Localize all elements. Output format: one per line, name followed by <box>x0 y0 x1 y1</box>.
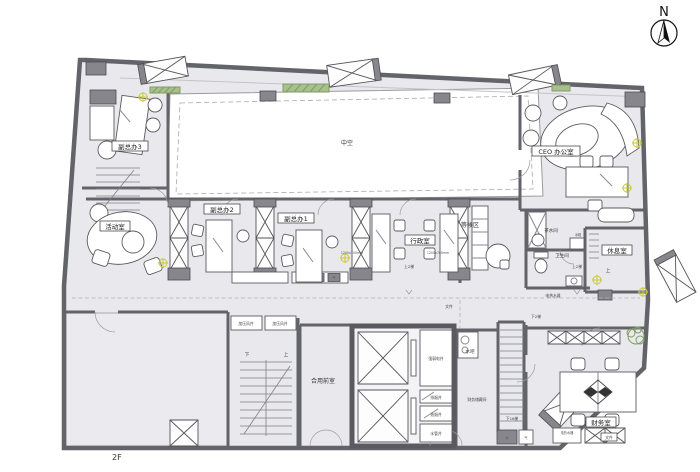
shared-vestibule-label: 合用前室 <box>311 377 335 385</box>
desk-size-label-2: 1200x700mm <box>427 251 449 255</box>
waiting-area-label: 等候区 <box>461 221 479 229</box>
files-cabinet-label-corridor: 文件 <box>445 304 453 309</box>
down-16-steps-label: 下16梯 <box>506 416 519 421</box>
fume-shaft-label: 油烟井 <box>430 412 442 417</box>
tea-room-label: 茶水间 <box>544 227 558 234</box>
north-compass: N <box>651 5 677 46</box>
up-2-steps-label-2: 上2梯 <box>572 264 582 269</box>
desk-size-label-1: 1200x700mm <box>341 251 363 255</box>
fridge-label: 冰箱 <box>575 232 582 237</box>
elevator-2 <box>358 390 416 442</box>
stair-down-label: 下 <box>245 352 250 358</box>
activity-room-label: 活动室 <box>105 222 125 231</box>
bay-window-right <box>654 250 696 303</box>
floor-plan-page: 气 水 气 <box>0 0 700 472</box>
pressure-air-shaft-label-1: 加压风井 <box>238 321 253 326</box>
finance-room-label: 财务室 <box>591 418 611 427</box>
smoke-shaft-label: 排烟井 <box>430 395 442 400</box>
toilet-label: 卫生间 <box>555 252 569 259</box>
admin-office-label: 行政室 <box>410 236 430 245</box>
elevator-1 <box>358 332 416 384</box>
atrium-void <box>167 88 543 201</box>
finance-storage-label: 财务储藏间 <box>468 397 487 402</box>
floor-plan: 气 水 气 <box>0 0 700 472</box>
ceo-office-label: CEO 办公室 <box>538 147 574 156</box>
electrical-shaft-label: 强弱电井 <box>428 356 443 361</box>
compass-n-label: N <box>659 5 669 20</box>
files-cabinet-label-finance: 文件 <box>605 435 613 440</box>
atrium-label: 中空 <box>341 139 353 147</box>
vice-office-1-label: 副总办1 <box>284 214 308 223</box>
service-shafts: 强弱电井 排烟井 油烟井 水管井 <box>420 330 452 442</box>
bottom-wall-column <box>170 420 198 446</box>
vice-office-2-label: 副总办2 <box>210 205 234 214</box>
up-2-steps-label-1: 上2梯 <box>404 264 414 269</box>
pressure-air-shaft-label-2: 加压风井 <box>272 321 287 326</box>
stair-up-label: 上 <box>284 351 289 358</box>
lounge-up-label: 上 <box>606 267 611 274</box>
compass-needle <box>658 20 664 43</box>
down-2-steps-label: 下2梯 <box>531 314 541 319</box>
large-room-floor <box>66 313 228 446</box>
water-bar-label: 水吧 <box>466 348 475 355</box>
vice-office-3-label: 副总办3 <box>118 142 142 151</box>
water-heater-label: 电热水器 <box>545 293 560 298</box>
appliance-box-label: 电热水器 <box>561 430 575 435</box>
water-pipe-shaft-label: 水管井 <box>430 431 442 436</box>
floor-label: 2F <box>112 453 122 462</box>
lounge-label: 休息室 <box>607 246 627 255</box>
